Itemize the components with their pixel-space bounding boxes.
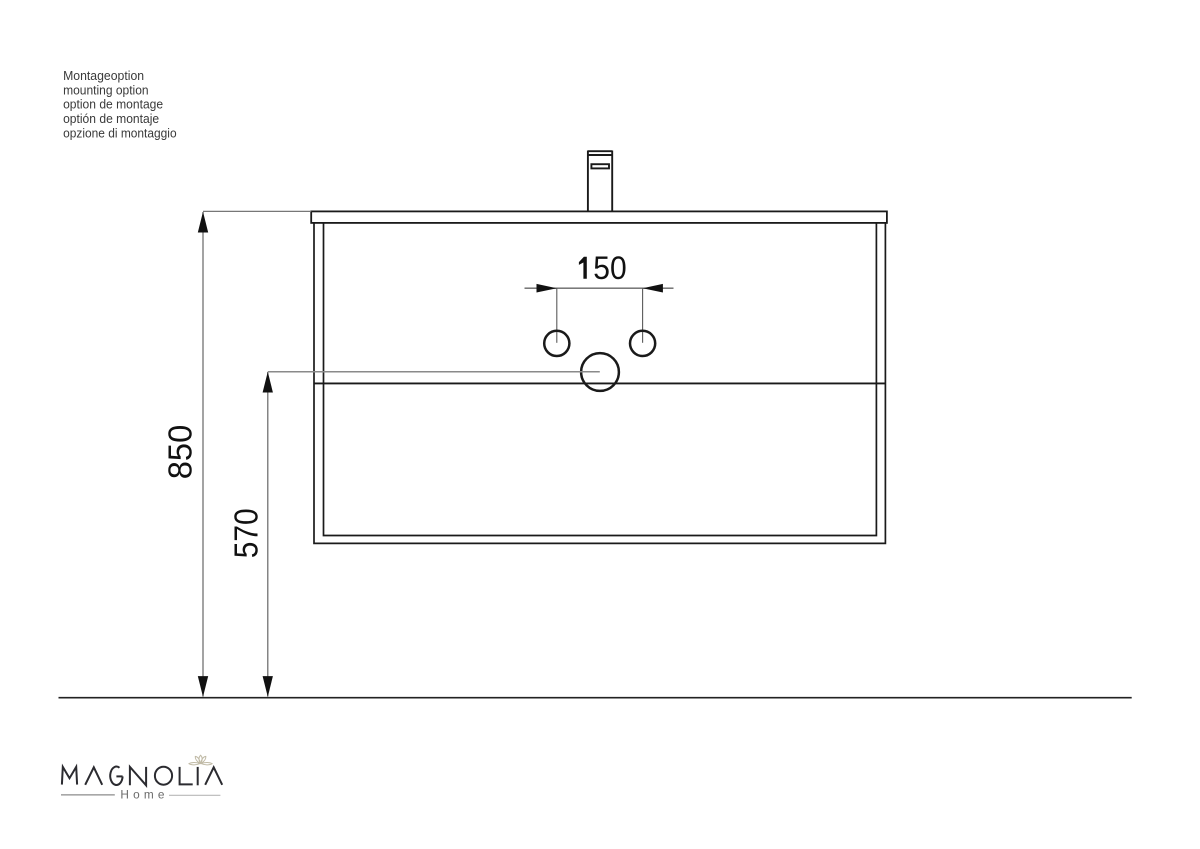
svg-text:850: 850 [163,425,200,480]
svg-text:mounting option: mounting option [63,82,149,97]
svg-text:50: 50 [593,249,626,286]
svg-text:Home: Home [120,788,168,802]
svg-text:option de montage: option de montage [63,97,163,112]
svg-text:Montageoption: Montageoption [63,68,144,83]
svg-text:optión de montaje: optión de montaje [63,111,159,126]
svg-text:opzione di montaggio: opzione di montaggio [63,126,177,141]
svg-text:570: 570 [228,508,265,558]
